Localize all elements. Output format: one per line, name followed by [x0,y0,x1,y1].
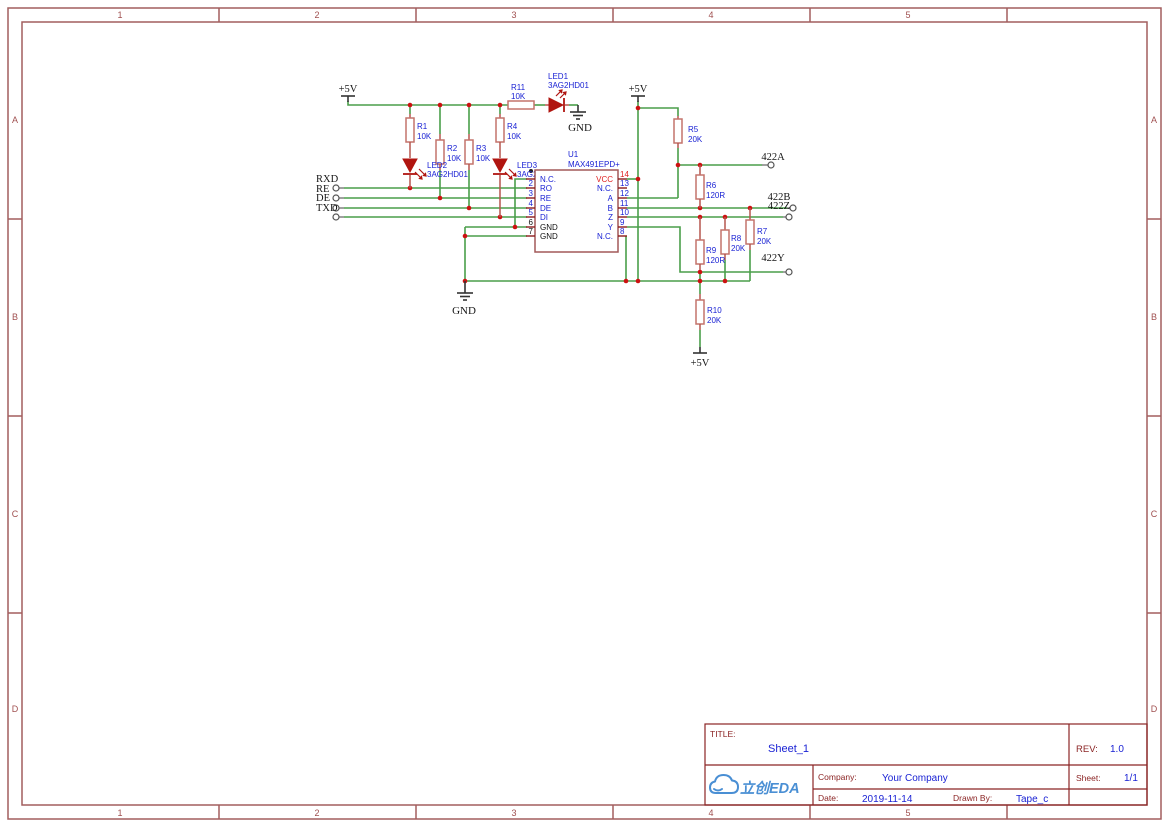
drawn-by-label: Drawn By: [953,793,992,803]
drawn-by-value: Tape_c [1016,794,1048,805]
value: 120R [706,191,725,200]
port-label: TXD [316,203,338,214]
power-flag-5v-bottom[interactable]: +5V [691,347,710,369]
frame-col-label: 3 [511,808,516,818]
value: 20K [757,237,772,246]
company-value: Your Company [882,773,948,784]
date-value: 2019-11-14 [862,794,913,805]
ic-u1[interactable]: U1 MAX491EPD+ 2 3 4 5 6 7 N.C. RO RE DE … [526,150,629,252]
value: 10K [476,154,491,163]
resistor-r7[interactable]: R7 20K [746,208,772,250]
value: 10K [507,132,522,141]
pin-name: RE [540,194,551,203]
power-flag-5v-left[interactable]: +5V [339,84,358,102]
frame-col-label: 1 [117,10,122,20]
frame-col-label: 2 [314,10,319,20]
frame-row-label: C [12,509,19,519]
frame-row-label: B [1151,312,1157,322]
sheet-title: Sheet_1 [768,743,809,755]
ref-des: LED2 [427,161,448,170]
frame-col-label: 5 [905,808,910,818]
pin-name: RO [540,184,552,193]
pin-number: 7 [529,227,534,236]
frame-col-label: 1 [117,808,122,818]
logo-text: 立创EDA [740,780,800,797]
pin-name: N.C. [540,175,556,184]
frame-col-label: 5 [905,10,910,20]
ref-des: U1 [568,150,579,159]
frame-col-label: 3 [511,10,516,20]
ref-des: R4 [507,122,518,131]
pin-number: 13 [620,179,629,188]
part-number: 3AG2HD01 [427,170,468,179]
rev-label: REV: [1076,744,1098,755]
ref-des: R7 [757,227,768,236]
pin-name: B [608,204,613,213]
port-label: 422A [761,152,785,163]
pin-name: N.C. [597,232,613,241]
title-block: TITLE: Sheet_1 REV: 1.0 立创EDA Company: Y… [705,724,1147,805]
frame-row-label: A [12,115,18,125]
ref-des: R5 [688,125,699,134]
pin-name: Z [608,213,613,222]
title-label: TITLE: [710,729,736,739]
resistor-r3[interactable]: R3 10K [465,134,491,170]
power-label: +5V [339,84,358,95]
pin-number: 11 [620,199,629,208]
resistor-r11[interactable]: R11 10K [508,83,534,109]
resistor-r5[interactable]: R5 20K [674,116,703,148]
port-422a[interactable]: 422A [761,152,785,168]
pin-name: VCC [596,175,613,184]
frame-row-label: D [1151,704,1158,714]
resistor-r1[interactable]: R1 10K [406,114,432,158]
ref-des: R2 [447,144,458,153]
pin-name: DE [540,204,551,213]
port-label: 422Y [761,253,785,264]
part-number: MAX491EPD+ [568,160,620,169]
led-led1[interactable]: LED1 3AG2HD01 [545,72,589,112]
sheet-label: Sheet: [1076,773,1101,783]
pin-number: 4 [529,199,534,208]
pin-name: N.C. [597,184,613,193]
ref-des: R10 [707,306,722,315]
frame-row-label: C [1151,509,1158,519]
ref-des: LED1 [548,72,569,81]
rev-value: 1.0 [1110,744,1124,755]
value: 10K [417,132,432,141]
pin-name: DI [540,213,548,222]
value: 20K [731,244,746,253]
pin-number: 9 [620,218,625,227]
power-flag-5v-right[interactable]: +5V [629,84,648,102]
pin-number: 5 [529,208,534,217]
power-label: +5V [629,84,648,95]
ref-des: R1 [417,122,428,131]
frame-row-label: B [12,312,18,322]
company-label: Company: [818,772,857,782]
ref-des: R11 [511,83,526,92]
ref-des: R8 [731,234,742,243]
ref-des: LED3 [517,161,538,170]
pin-number: 14 [620,170,629,179]
frame-col-label: 2 [314,808,319,818]
value: 10K [447,154,462,163]
value: 20K [688,135,703,144]
frame-col-label: 4 [708,808,713,818]
pin-number: 3 [529,189,534,198]
power-label: +5V [691,358,710,369]
frame-col-label: 4 [708,10,713,20]
ref-des: R9 [706,246,717,255]
port-label: 422Z [768,201,790,212]
pin-name: GND [540,232,558,241]
resistor-r8[interactable]: R8 20K [721,217,746,260]
frame-row-label: A [1151,115,1157,125]
pin-number: 12 [620,189,629,198]
pin-name: Y [608,223,614,232]
date-label: Date: [818,793,838,803]
schematic-canvas[interactable]: 1 2 3 4 5 1 2 3 4 5 A B C D A B C D [0,0,1169,827]
resistor-r6[interactable]: R6 120R [696,165,725,208]
easyeda-logo: 立创EDA [710,775,800,797]
gnd-label: GND [568,122,592,134]
port-txd[interactable]: TXD [316,203,344,220]
ref-des: R6 [706,181,717,190]
frame-row-label: D [12,704,19,714]
led-led2[interactable]: LED2 3AG2HD01 [403,159,468,188]
pin-number: 8 [620,227,625,236]
pin-name: A [608,194,614,203]
gnd-label: GND [452,305,476,317]
value: 120R [706,256,725,265]
pin-number: 6 [529,218,534,227]
gnd-symbol-top[interactable]: GND [568,105,592,134]
pin-number: 2 [529,179,534,188]
part-number: 3AG2HD01 [548,81,589,90]
value: 20K [707,316,722,325]
ref-des: R3 [476,144,487,153]
gnd-symbol-bottom[interactable]: GND [452,281,476,317]
pin-number: 10 [620,208,629,217]
value: 10K [511,92,526,101]
resistor-r10[interactable]: R10 20K [696,294,722,330]
sheet-value: 1/1 [1124,773,1138,784]
pin-name: GND [540,223,558,232]
resistor-r4[interactable]: R4 10K [496,114,522,158]
